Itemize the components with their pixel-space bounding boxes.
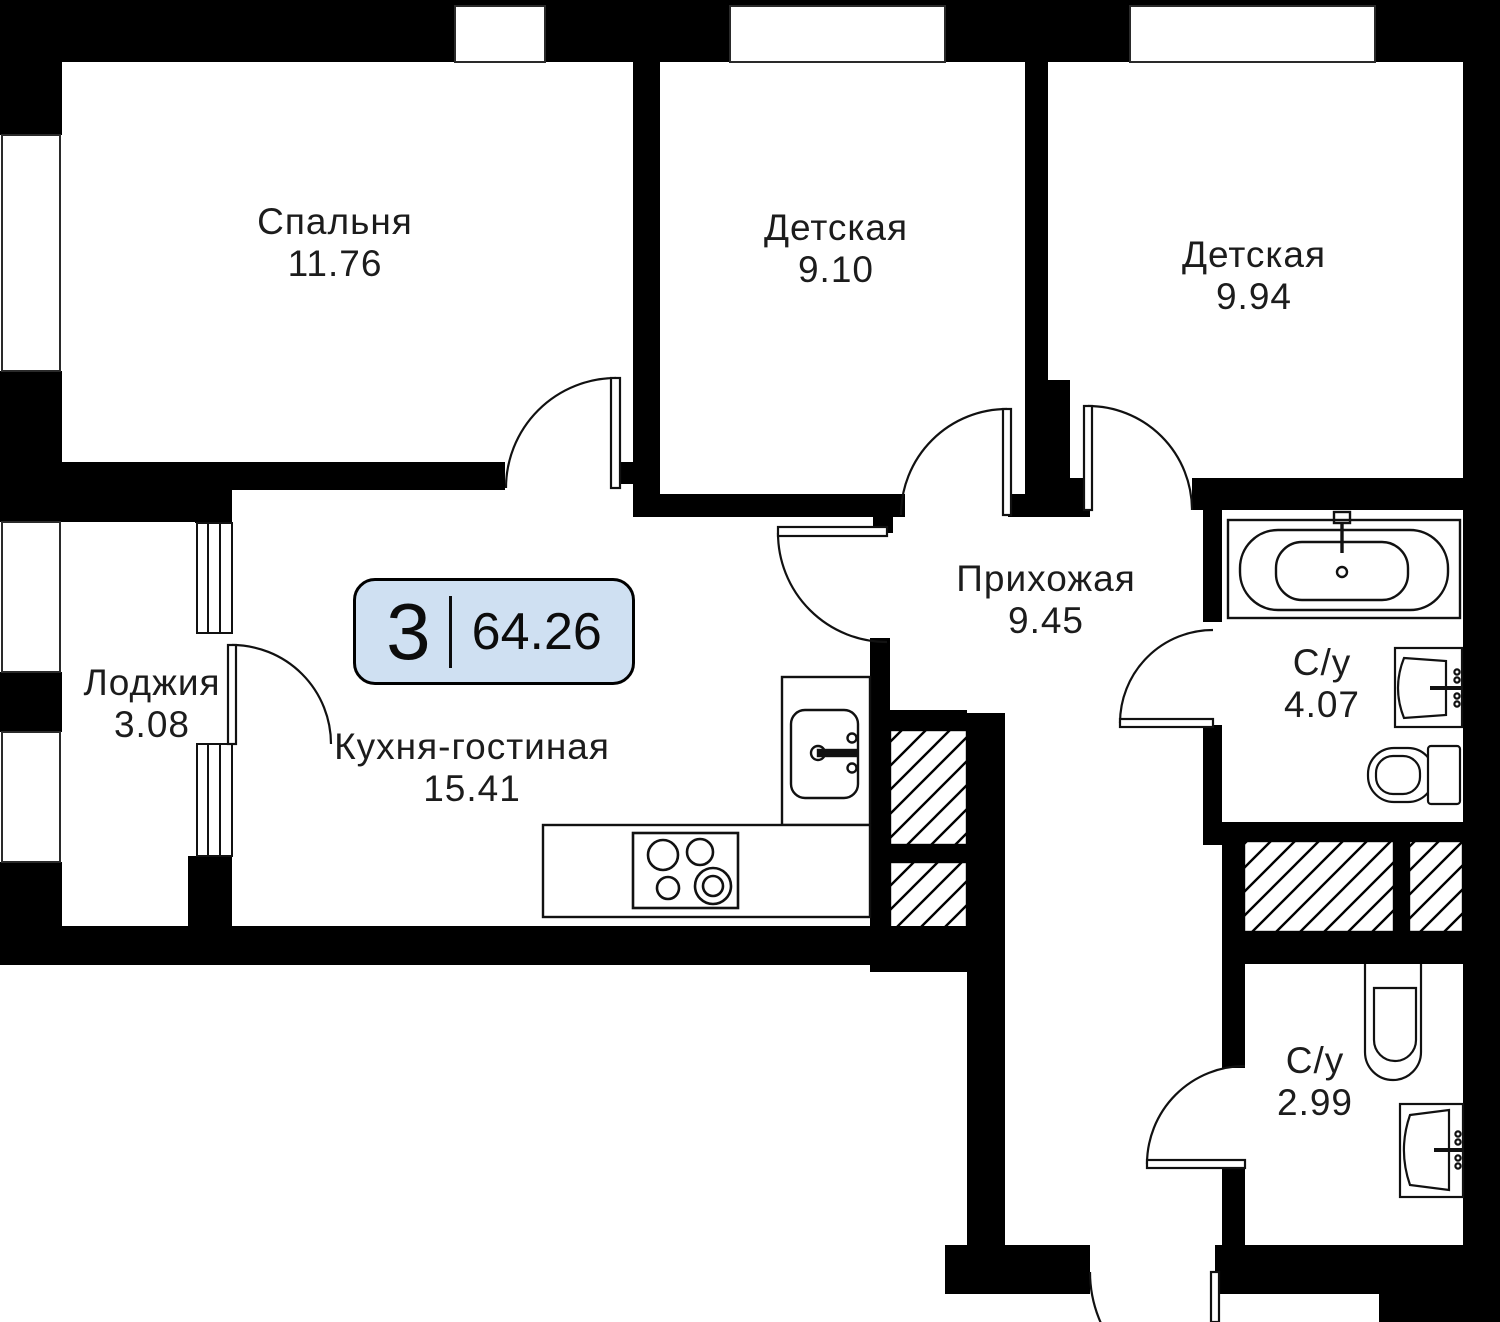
room-label-hallway: Прихожая 9.45 — [956, 558, 1135, 642]
badge-divider — [449, 596, 452, 668]
room-area: 3.08 — [83, 704, 220, 746]
wall-bath2-top — [1222, 932, 1500, 964]
room-area: 2.99 — [1277, 1082, 1353, 1124]
room-name: Лоджия — [83, 662, 220, 704]
total-area: 64.26 — [472, 606, 602, 658]
rooms-count: 3 — [386, 592, 431, 672]
window — [2, 522, 60, 672]
door-arc — [1120, 630, 1213, 723]
room-name: Прихожая — [956, 558, 1135, 600]
wall-shaft-top — [1222, 822, 1500, 841]
room-area: 9.45 — [956, 600, 1135, 642]
wall-bedroom-kids — [633, 62, 660, 517]
door-leaf — [1084, 406, 1092, 510]
wall-bath1-left — [1203, 510, 1222, 622]
wall-left — [0, 371, 62, 522]
room-name: Детская — [1182, 234, 1326, 276]
ventilation-shaft-hatch — [1409, 841, 1463, 932]
wall-kids1-bottom — [633, 494, 905, 517]
window — [730, 6, 945, 62]
window — [455, 6, 545, 62]
room-area: 15.41 — [334, 768, 610, 810]
door-arc — [506, 378, 616, 488]
bathtub-icon — [1228, 512, 1460, 618]
room-area: 11.76 — [257, 243, 413, 285]
wall-kids2-bottom — [1192, 478, 1463, 510]
toilet-icon — [1368, 746, 1460, 804]
bathroom-sink-icon — [1395, 648, 1462, 727]
window — [2, 732, 60, 862]
door-arc — [1090, 1272, 1215, 1322]
room-area: 9.94 — [1182, 276, 1326, 318]
door-leaf — [778, 527, 887, 536]
ventilation-shaft-hatch — [890, 862, 967, 929]
wall-shaft-mid — [1394, 841, 1409, 932]
door-leaf — [1147, 1160, 1245, 1168]
wall-right — [1463, 62, 1500, 1294]
window — [197, 523, 232, 633]
wall-shaft-left — [1222, 841, 1244, 932]
door-leaf — [1003, 409, 1011, 515]
room-name: С/у — [1277, 1040, 1353, 1082]
room-label-kitchen-living: Кухня-гостиная 15.41 — [334, 726, 610, 810]
room-label-bedroom: Спальня 11.76 — [257, 201, 413, 285]
wall-entry-right — [1215, 1245, 1379, 1294]
door-leaf — [1120, 719, 1213, 727]
wall-bath2-left — [1222, 964, 1245, 1068]
wall-left — [0, 672, 62, 732]
wall-shaft-band — [870, 845, 967, 862]
wall-loggia-right — [188, 856, 232, 926]
floor-plan-drawing — [0, 0, 1500, 1322]
room-name: Спальня — [257, 201, 413, 243]
room-label-loggia: Лоджия 3.08 — [83, 662, 220, 746]
window — [1130, 6, 1375, 62]
door-leaf — [228, 645, 236, 744]
ventilation-shaft-hatch — [890, 730, 967, 845]
door-arc — [1147, 1066, 1245, 1164]
ventilation-shaft-hatch — [1244, 841, 1394, 932]
room-name: С/у — [1284, 642, 1360, 684]
apartment-badge: 3 64.26 — [353, 578, 635, 685]
wall-bath2-left — [1222, 1164, 1245, 1245]
room-area: 4.07 — [1284, 684, 1360, 726]
wall-bath1-left — [1203, 725, 1222, 845]
door-leaf — [1211, 1272, 1219, 1322]
door-arc — [1088, 406, 1192, 510]
room-area: 9.10 — [764, 249, 908, 291]
wall-vestibule-left — [967, 713, 1005, 1294]
room-name: Детская — [764, 207, 908, 249]
room-label-kids-1: Детская 9.10 — [764, 207, 908, 291]
door-arc — [232, 645, 331, 744]
toilet-icon — [1365, 964, 1421, 1080]
door-leaf — [611, 378, 620, 488]
bathroom-sink-icon — [1400, 1104, 1463, 1197]
room-label-bathroom-2: С/у 2.99 — [1277, 1040, 1353, 1124]
wall-left — [0, 62, 62, 135]
door-arc — [778, 533, 887, 642]
door-arc — [901, 409, 1007, 515]
wall-loggia-right — [195, 472, 232, 523]
wall-kitchen-hall — [870, 638, 890, 930]
wall-kids-divider — [1025, 62, 1048, 380]
wall-kitchen-bottom — [0, 926, 975, 965]
wall-shaft-band — [870, 710, 967, 730]
window — [2, 135, 60, 371]
walls — [0, 0, 1500, 1322]
wall-kids2-bottom — [1048, 478, 1088, 510]
room-label-bathroom-1: С/у 4.07 — [1284, 642, 1360, 726]
room-label-kids-2: Детская 9.94 — [1182, 234, 1326, 318]
floor-plan: Спальня 11.76 Детская 9.10 Детская 9.94 … — [0, 0, 1500, 1322]
wall-bottom-right — [1379, 1245, 1500, 1322]
window — [197, 744, 232, 856]
wall-entry-left — [945, 1245, 1090, 1294]
room-name: Кухня-гостиная — [334, 726, 610, 768]
